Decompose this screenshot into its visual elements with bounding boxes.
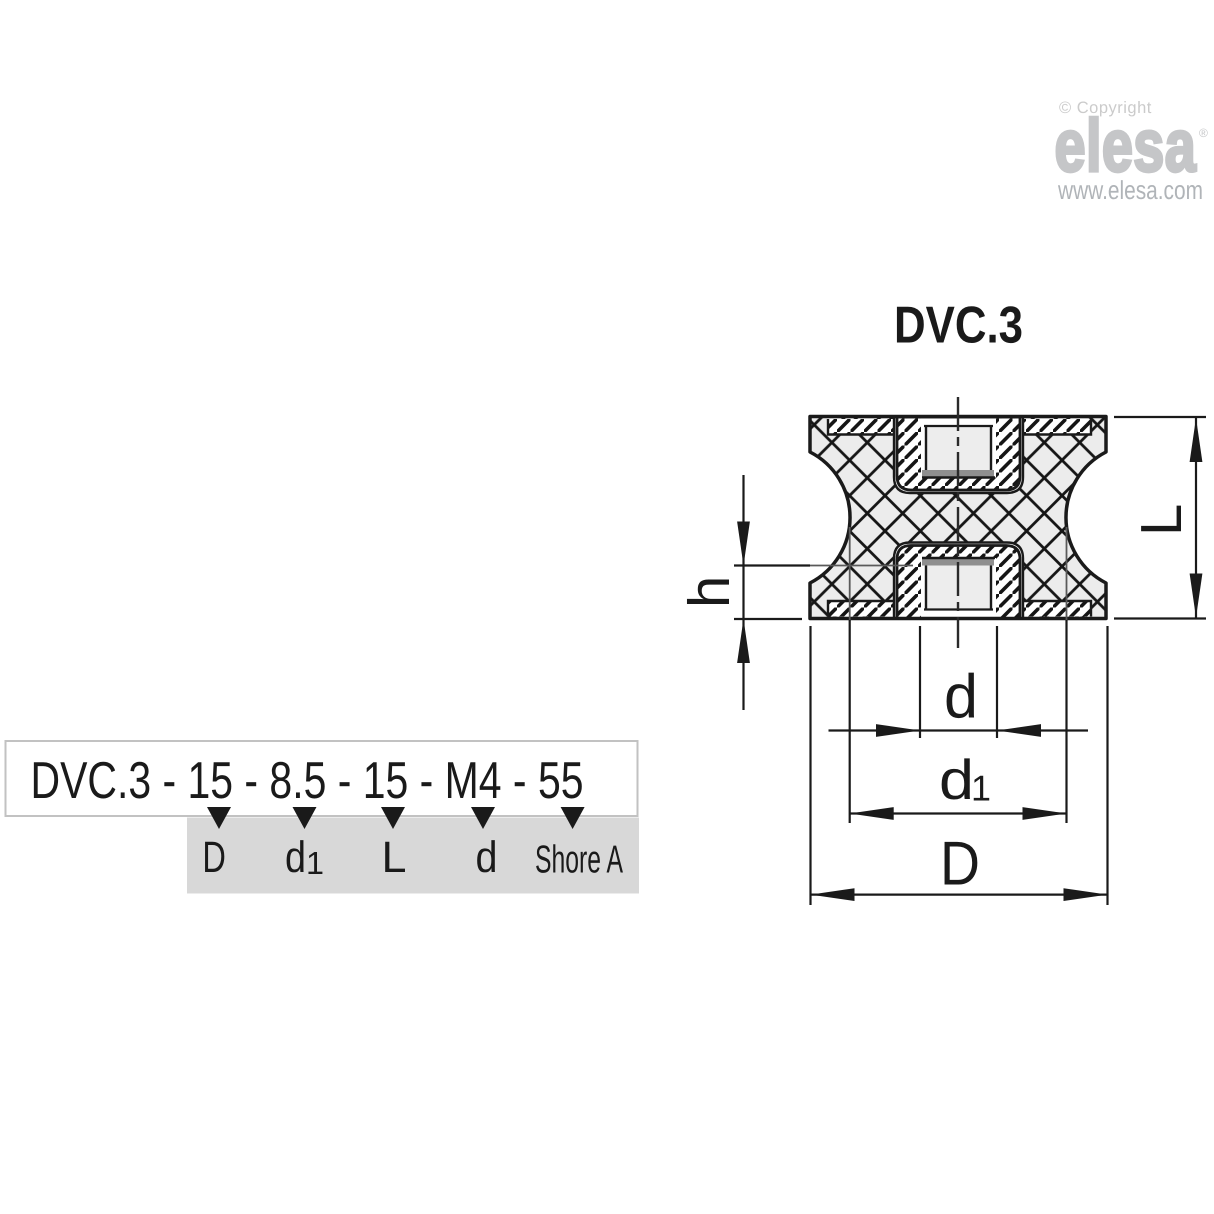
svg-text:Shore A: Shore A <box>535 838 623 881</box>
svg-text:L: L <box>1129 504 1194 536</box>
svg-text:DVC.3 - 15 - 8.5 - 15 - M4 - 5: DVC.3 - 15 - 8.5 - 15 - M4 - 55 <box>31 752 584 810</box>
svg-text:L: L <box>382 833 407 882</box>
svg-text:D: D <box>940 830 980 899</box>
svg-text:D: D <box>202 833 226 882</box>
svg-text:d: d <box>285 833 306 882</box>
svg-text:DVC.3: DVC.3 <box>894 297 1023 355</box>
svg-text:d: d <box>944 663 978 732</box>
svg-text:1: 1 <box>971 768 991 809</box>
svg-text:www.elesa.com: www.elesa.com <box>1057 175 1203 205</box>
svg-text:h: h <box>677 576 742 608</box>
svg-text:1: 1 <box>306 845 324 881</box>
svg-text:®: ® <box>1199 126 1208 140</box>
svg-text:d: d <box>939 748 974 811</box>
svg-text:d: d <box>476 833 498 882</box>
